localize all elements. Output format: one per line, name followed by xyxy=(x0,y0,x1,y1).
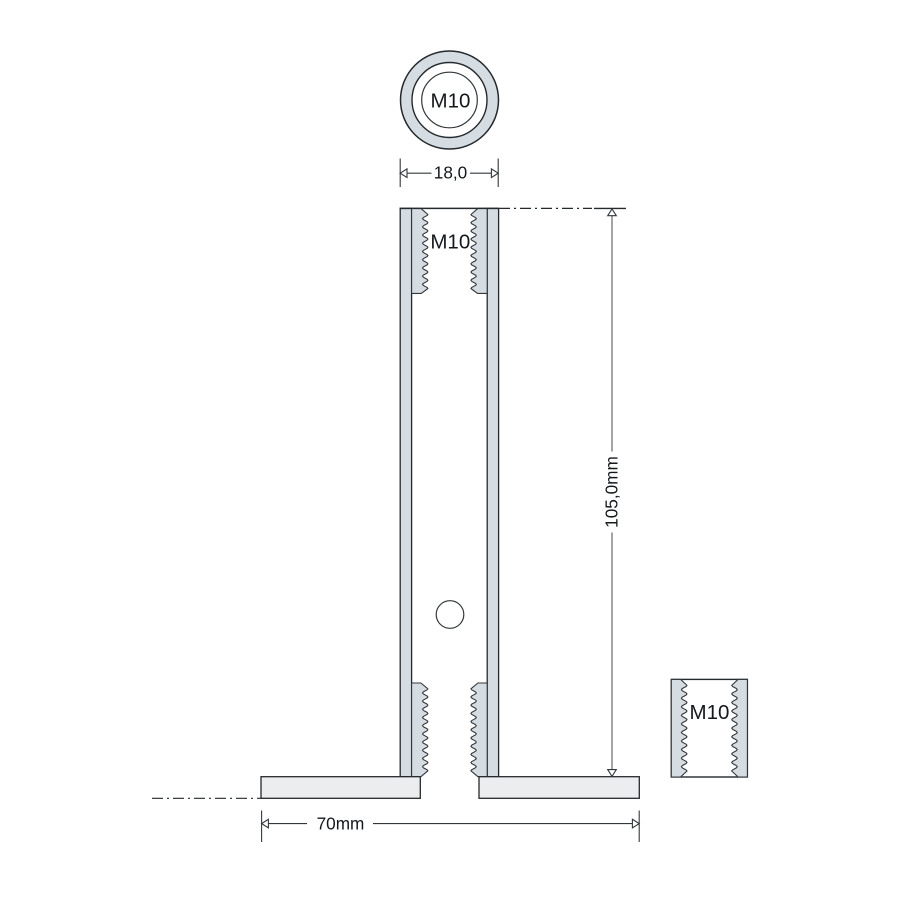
svg-text:70mm: 70mm xyxy=(317,813,365,833)
svg-text:M10: M10 xyxy=(690,701,730,724)
svg-text:M10: M10 xyxy=(431,90,471,113)
svg-text:18,0: 18,0 xyxy=(434,163,467,183)
svg-text:M10: M10 xyxy=(430,231,470,254)
svg-text:105,0mm: 105,0mm xyxy=(601,456,621,528)
